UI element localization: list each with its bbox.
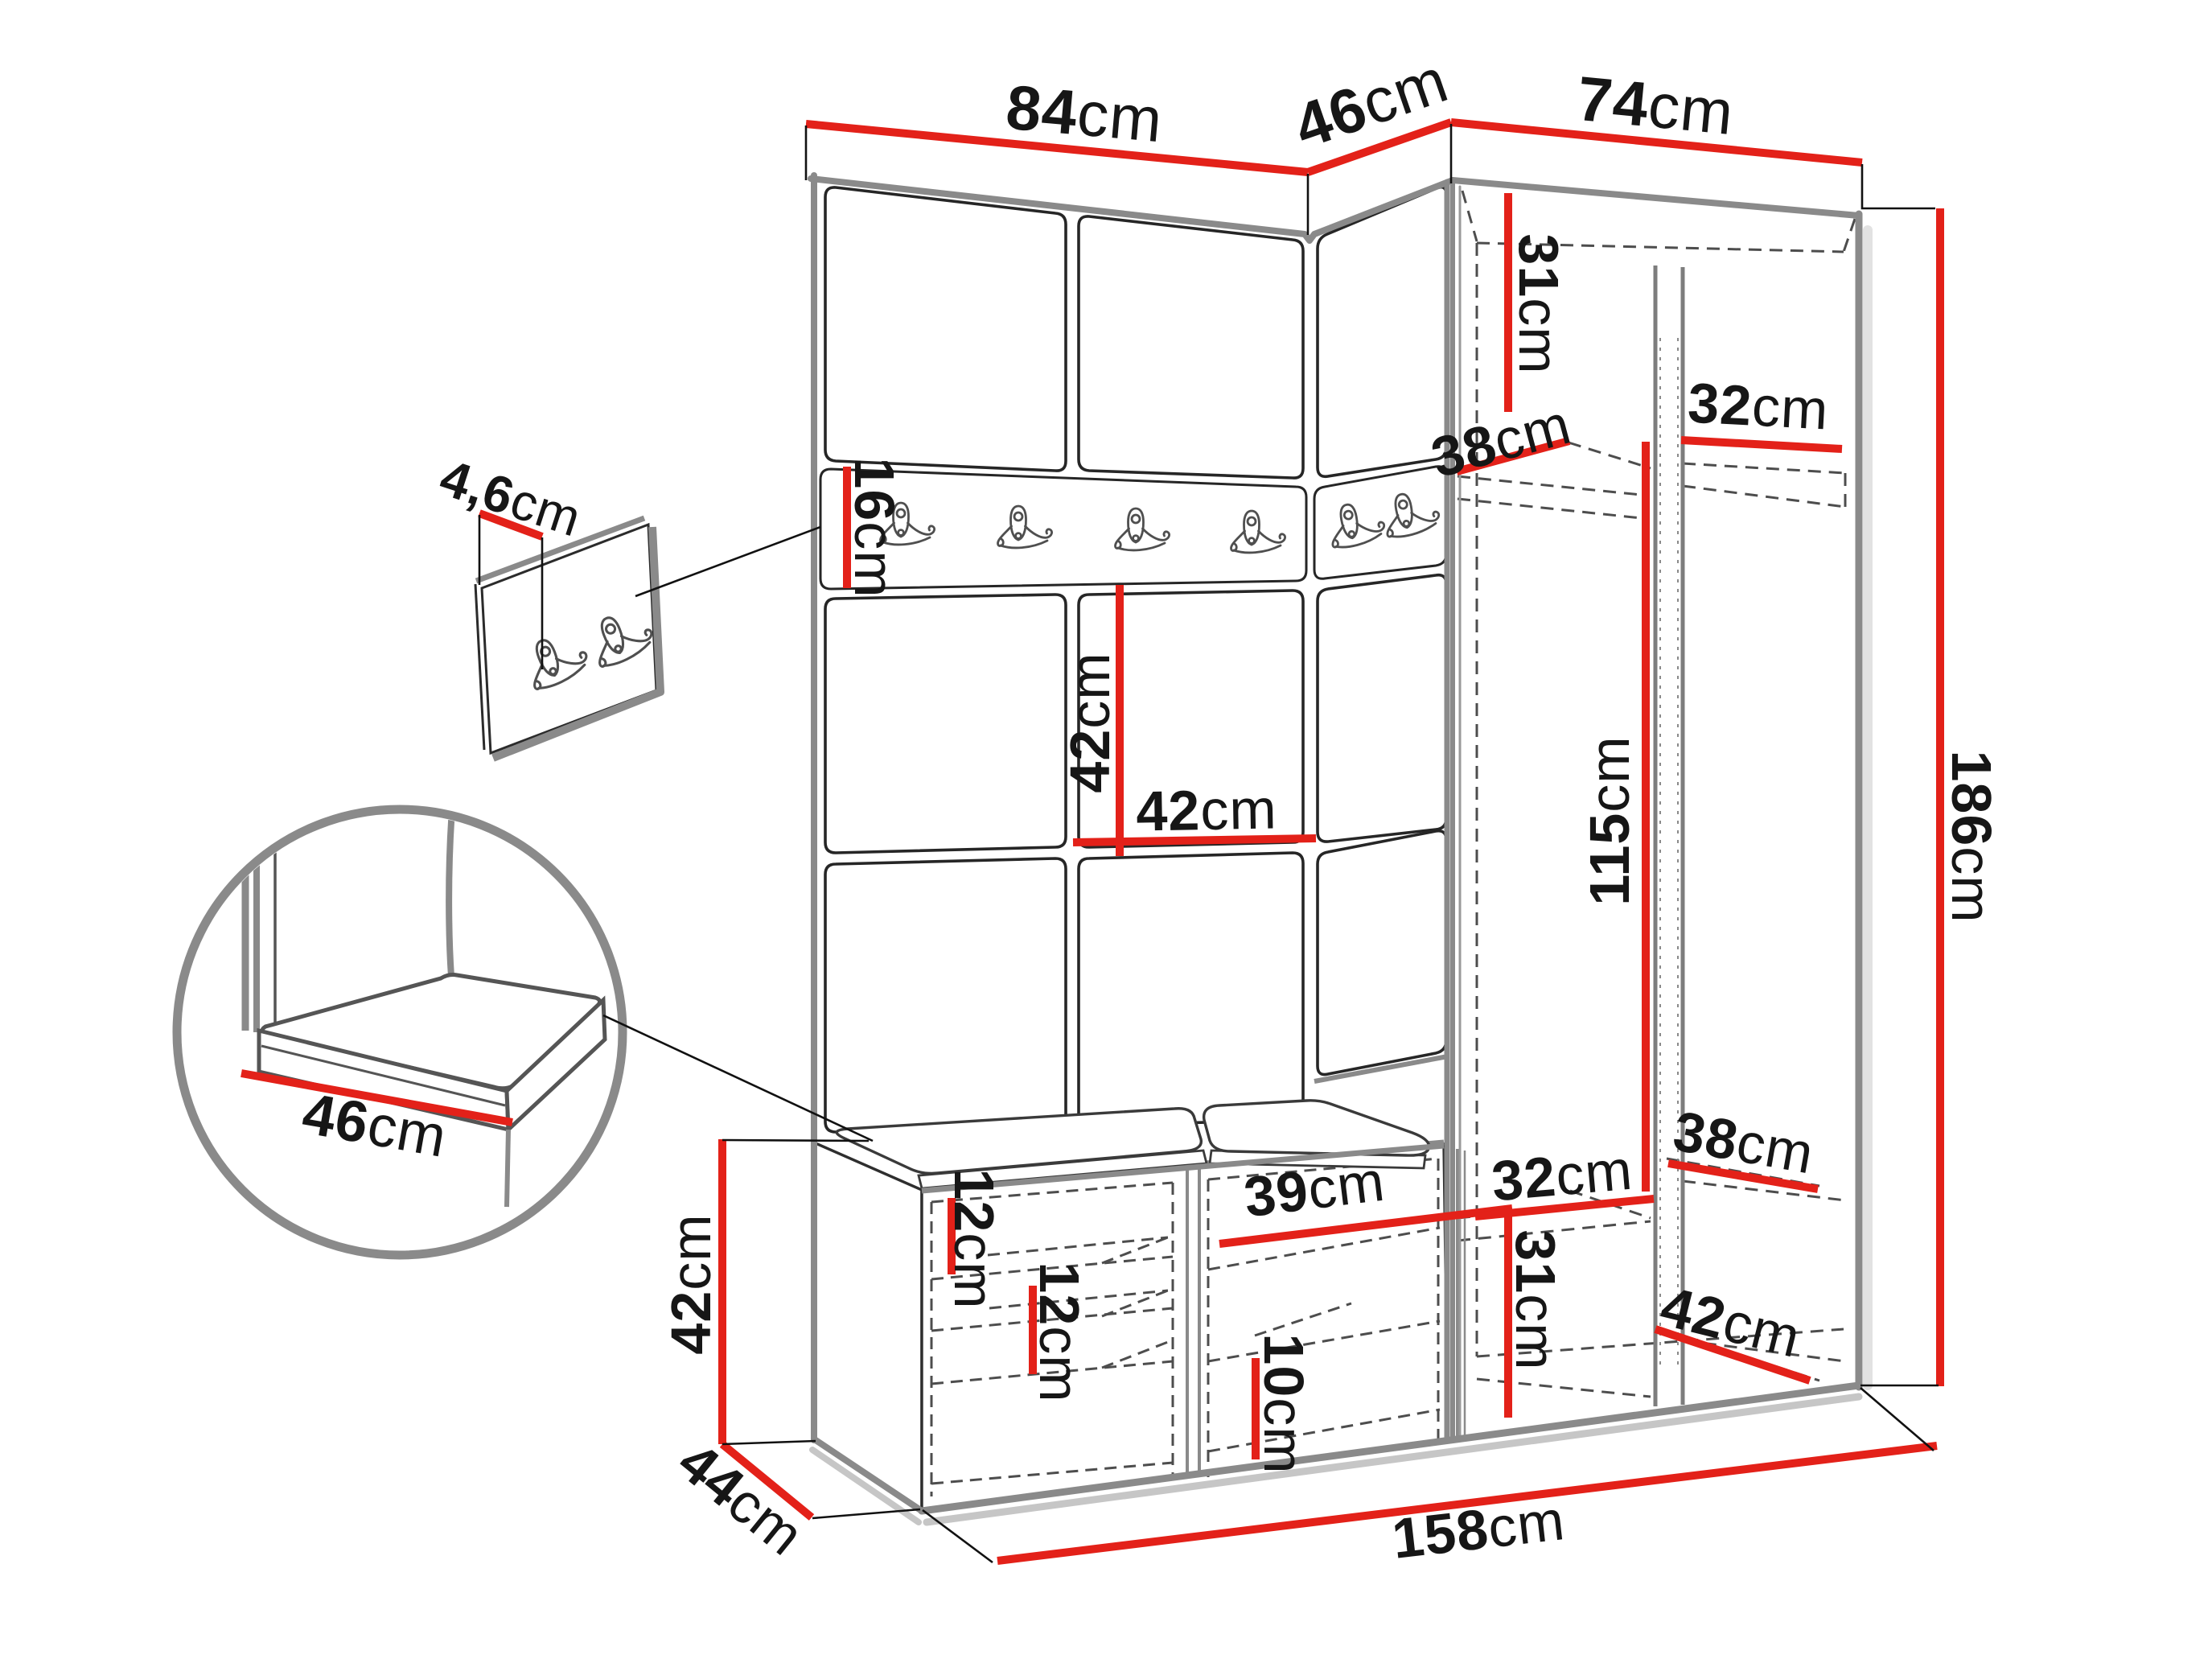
svg-text:42cm: 42cm xyxy=(660,1213,722,1354)
svg-text:74cm: 74cm xyxy=(1574,63,1737,148)
svg-text:31cm: 31cm xyxy=(1504,1229,1567,1370)
svg-text:115cm: 115cm xyxy=(1578,735,1641,905)
svg-text:42cm: 42cm xyxy=(1136,777,1278,842)
svg-text:186cm: 186cm xyxy=(1940,750,2003,923)
svg-text:32cm: 32cm xyxy=(1686,371,1830,441)
svg-text:10cm: 10cm xyxy=(1252,1333,1315,1474)
svg-text:12cm: 12cm xyxy=(943,1168,1005,1309)
svg-text:16cm: 16cm xyxy=(843,457,906,598)
svg-text:42cm: 42cm xyxy=(1059,652,1121,792)
svg-text:32cm: 32cm xyxy=(1489,1138,1634,1213)
svg-text:84cm: 84cm xyxy=(1003,72,1166,156)
svg-text:12cm: 12cm xyxy=(1028,1262,1091,1402)
svg-text:31cm: 31cm xyxy=(1507,233,1570,374)
